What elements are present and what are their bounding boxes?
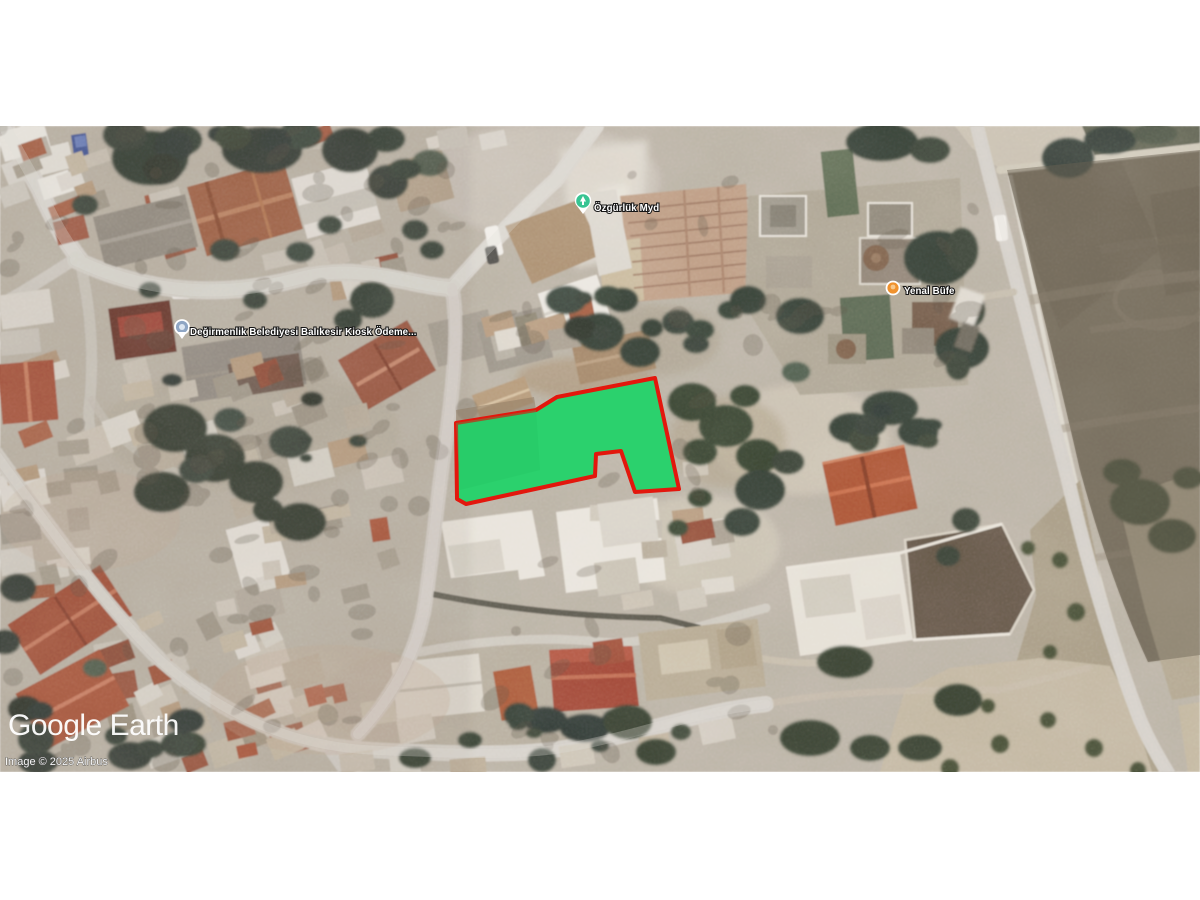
- svg-text:Google Earth: Google Earth: [8, 709, 179, 742]
- svg-text:Değirmenlik Belediyesi Balıkes: Değirmenlik Belediyesi Balıkesir Kiosk Ö…: [190, 327, 417, 338]
- svg-text:Yenal Büfe: Yenal Büfe: [904, 286, 955, 297]
- svg-text:Özgürlük Myd: Özgürlük Myd: [594, 203, 659, 214]
- svg-text:Image © 2025 Airbus: Image © 2025 Airbus: [5, 756, 108, 768]
